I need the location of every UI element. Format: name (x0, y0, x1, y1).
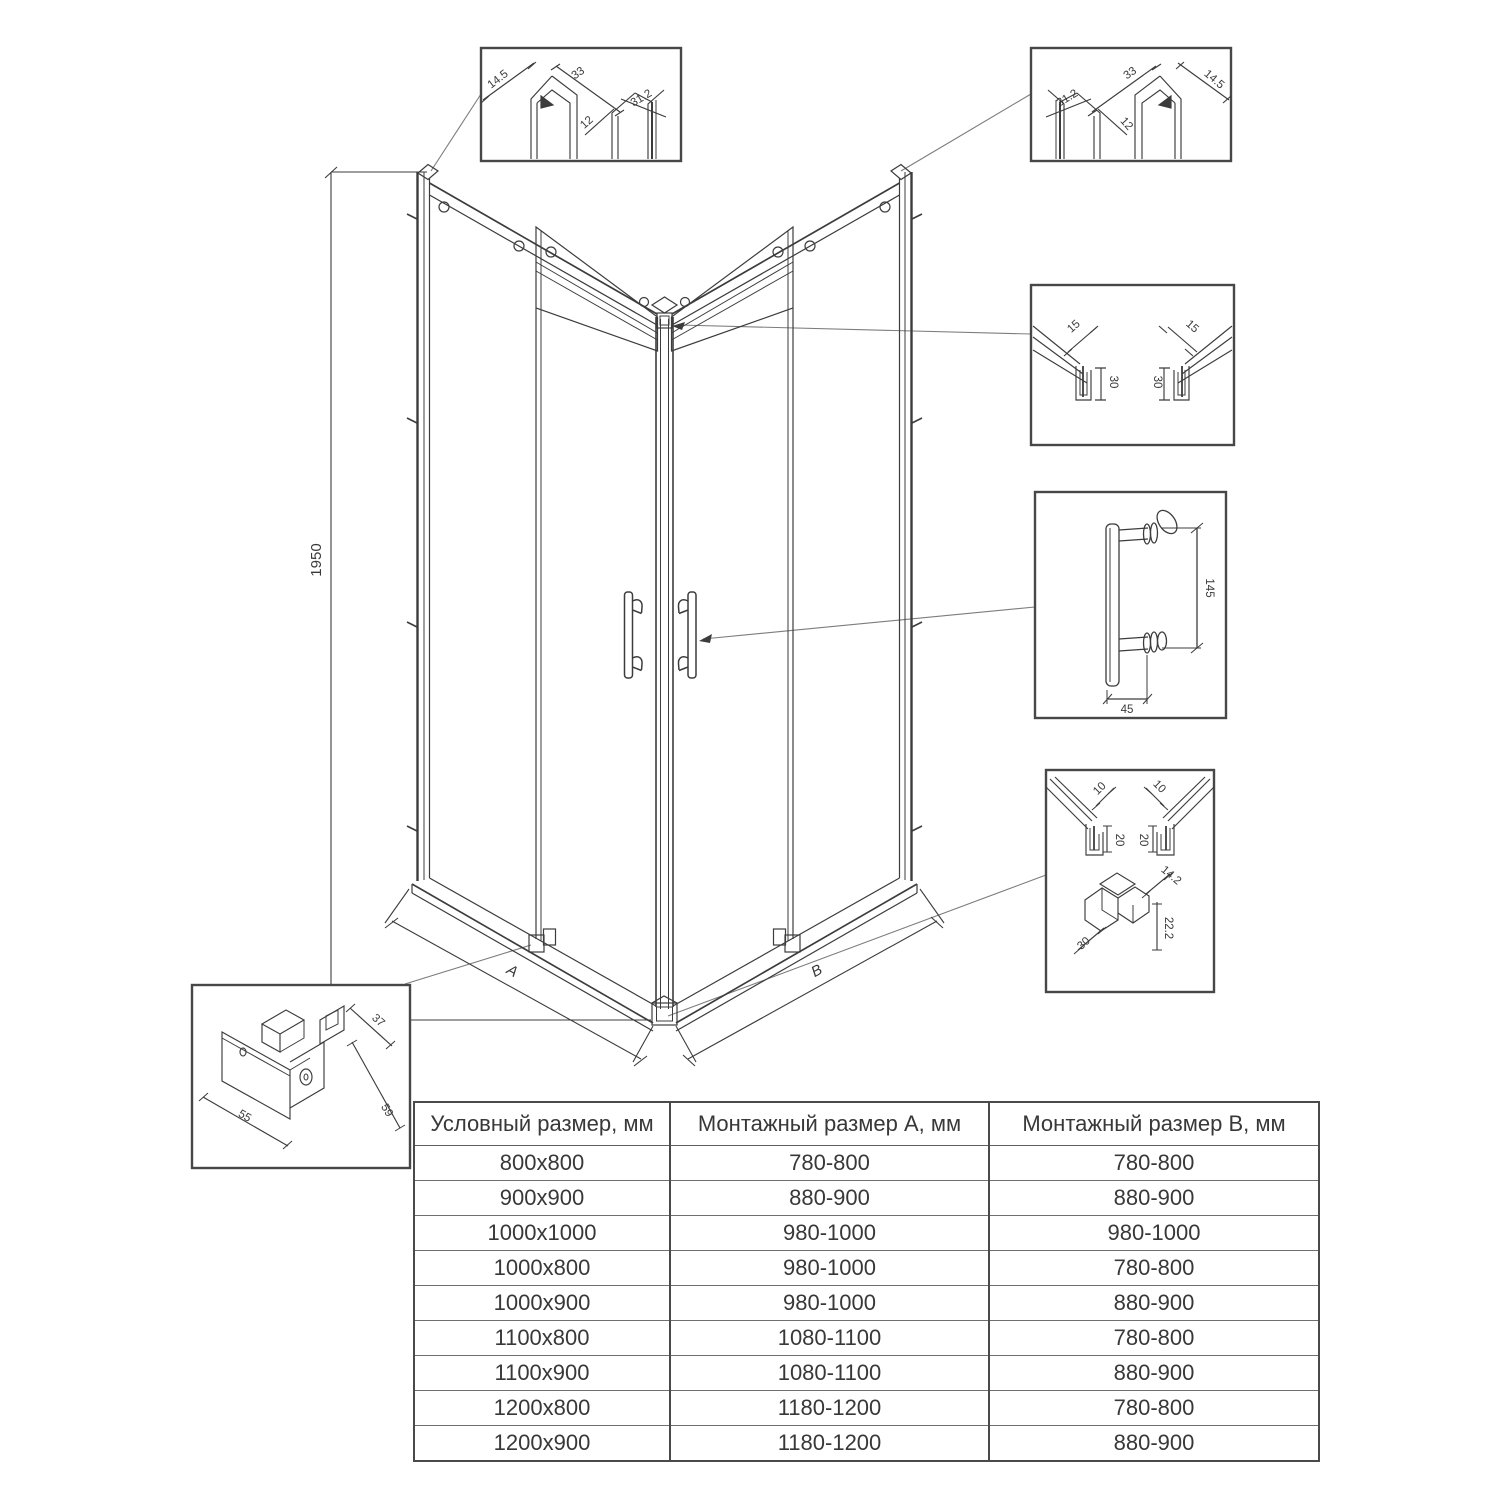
detail5-dim-20-right: 20 (1137, 834, 1149, 847)
table-cell: 800x800 (414, 1146, 670, 1181)
table-row: 1000x1000 980-1000 980-1000 (414, 1216, 1319, 1251)
height-dimension-label: 1950 (308, 543, 325, 576)
table-row: 1100x900 1080-1100 880-900 (414, 1356, 1319, 1391)
table-cell: 1100x900 (414, 1356, 670, 1391)
size-spec-table: Условный размер, мм Монтажный размер A, … (413, 1101, 1320, 1462)
dimension-width-b (676, 889, 944, 1066)
table-cell: 1100x800 (414, 1321, 670, 1356)
rollers (439, 202, 890, 307)
table-cell: 780-800 (989, 1251, 1319, 1286)
table-cell: 980-1000 (670, 1286, 989, 1321)
width-b-label: B (808, 961, 825, 981)
table-cell: 1080-1100 (670, 1356, 989, 1391)
bottom-rail-right (676, 884, 917, 1031)
table-cell: 880-900 (989, 1426, 1319, 1462)
table-row: 1000x800 980-1000 780-800 (414, 1251, 1319, 1286)
bottom-rail-left (412, 884, 653, 1031)
table-cell: 880-900 (989, 1356, 1319, 1391)
table-cell: 780-800 (670, 1146, 989, 1181)
table-cell: 1000x800 (414, 1251, 670, 1286)
top-rail-right (672, 183, 900, 325)
top-rail-left (430, 183, 658, 325)
header-mounting-size-b: Монтажный размер B, мм (989, 1102, 1319, 1146)
table-cell: 1000x900 (414, 1286, 670, 1321)
table-cell: 880-900 (989, 1286, 1319, 1321)
header-nominal-size: Условный размер, мм (414, 1102, 670, 1146)
table-cell: 1200x900 (414, 1426, 670, 1462)
width-a-label: A (503, 961, 521, 981)
table-cell: 980-1000 (670, 1251, 989, 1286)
table-cell: 1000x1000 (414, 1216, 670, 1251)
table-row: 1000x900 980-1000 880-900 (414, 1286, 1319, 1321)
detail4-dim-145: 145 (1203, 578, 1215, 597)
table-row: 1200x900 1180-1200 880-900 (414, 1426, 1319, 1462)
table-row: 900x900 880-900 880-900 (414, 1181, 1319, 1216)
fixed-panel-edges (536, 308, 793, 941)
table-cell: 780-800 (989, 1391, 1319, 1426)
detail-box-frames (192, 48, 1234, 1168)
table-cell: 780-800 (989, 1146, 1319, 1181)
table-cell: 980-1000 (989, 1216, 1319, 1251)
table-cell: 1180-1200 (670, 1426, 989, 1462)
table-cell: 880-900 (670, 1181, 989, 1216)
detail5-dim-20-left: 20 (1113, 834, 1125, 847)
table-cell: 1200x800 (414, 1391, 670, 1426)
table-cell: 1180-1200 (670, 1391, 989, 1426)
glass-bottom-edges (430, 878, 900, 1006)
table-cell: 1080-1100 (670, 1321, 989, 1356)
leader-arrowheads (672, 322, 712, 643)
header-mounting-size-a: Монтажный размер A, мм (670, 1102, 989, 1146)
table-row: 1200x800 1180-1200 780-800 (414, 1391, 1319, 1426)
corner-post (652, 297, 677, 1025)
table-row: 1100x800 1080-1100 780-800 (414, 1321, 1319, 1356)
technical-drawing-page: 1950 A B 14.5 33 12 31.2 (0, 0, 1500, 1500)
dimension-height-1950 (325, 167, 651, 1026)
door-track-right (672, 227, 794, 351)
guide-block-left (529, 929, 556, 952)
door-handle-left (625, 592, 643, 678)
wall-profile-left (407, 165, 438, 882)
detail5-dim-22-2: 22.2 (1162, 917, 1174, 939)
detail4-dim-45: 45 (1121, 704, 1134, 716)
table-header-row: Условный размер, мм Монтажный размер A, … (414, 1102, 1319, 1146)
guide-block-right (774, 929, 801, 952)
table-cell: 980-1000 (670, 1216, 989, 1251)
table-cell: 780-800 (989, 1321, 1319, 1356)
table-row: 800x800 780-800 780-800 (414, 1146, 1319, 1181)
door-track-left (536, 227, 658, 351)
wall-profile-right (891, 165, 922, 882)
table-cell: 900x900 (414, 1181, 670, 1216)
detail3-dim-30-right: 30 (1151, 376, 1163, 389)
main-enclosure (407, 165, 922, 1032)
table-cell: 880-900 (989, 1181, 1319, 1216)
leader-lines (405, 94, 1046, 1016)
door-handle-right (678, 592, 696, 678)
detail3-dim-30-left: 30 (1107, 376, 1119, 389)
